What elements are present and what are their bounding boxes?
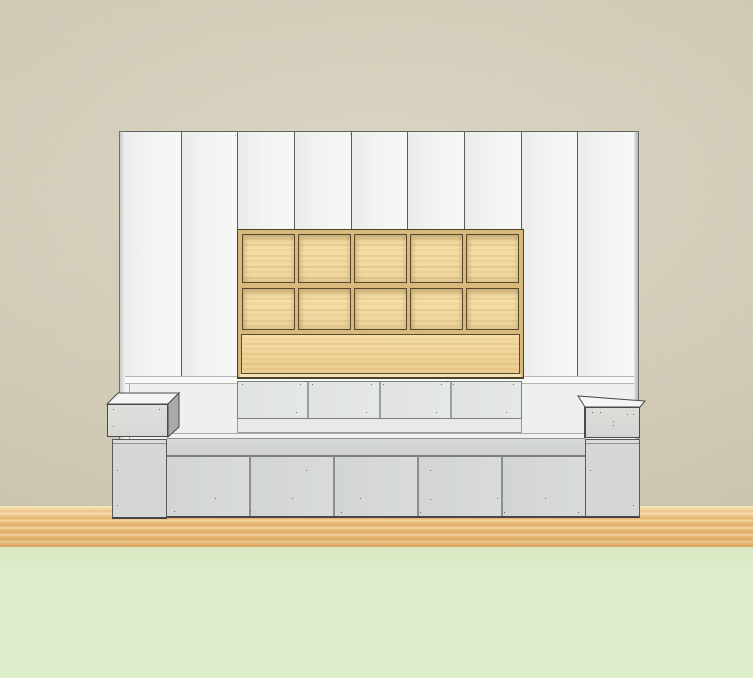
base-door: [335, 456, 417, 516]
drawer-front: [238, 382, 307, 418]
drawer-front: [381, 382, 450, 418]
cabinet-panel: [125, 132, 181, 383]
drawer-row: [237, 381, 522, 419]
cubby-cell: [466, 234, 519, 283]
base-door: [503, 456, 585, 516]
base-door: [167, 456, 249, 516]
cabinet-panel: [522, 132, 578, 383]
left-pedestal-cap: [113, 440, 166, 444]
cubby-cell: [242, 234, 295, 283]
drawer-front: [309, 382, 378, 418]
drawer-front: [452, 382, 521, 418]
left-box-front: [107, 404, 168, 437]
drawer-plinth: [237, 419, 522, 433]
cubby-cell: [298, 234, 351, 283]
cabinet-panel: [578, 132, 634, 383]
left-pedestal: [112, 439, 167, 519]
bench-front-rail: [167, 439, 585, 456]
shelf-bottom-edge: [240, 374, 521, 377]
cubby-cell: [410, 288, 463, 330]
cubby-cell: [242, 288, 295, 330]
right-pedestal-cap: [586, 440, 639, 444]
base-door-row: [167, 456, 585, 518]
green-floor: [0, 547, 753, 678]
shelf-bottom-panel: [241, 334, 520, 374]
cubby-row-top: [242, 234, 519, 283]
cubby-row-bottom: [242, 288, 519, 330]
base-door: [251, 456, 333, 516]
screw-dots: [0, 0, 1, 1]
right-box-front: [585, 407, 640, 438]
cubby-cell: [354, 288, 407, 330]
cabinet-panel: [182, 132, 238, 383]
cubby-cell: [354, 234, 407, 283]
cubby-cell: [410, 234, 463, 283]
cubby-cell: [298, 288, 351, 330]
right-pedestal: [585, 439, 640, 518]
wood-cubby-unit: [237, 229, 524, 379]
base-door: [419, 456, 501, 516]
cubby-cell: [466, 288, 519, 330]
furniture-render-canvas: [0, 0, 753, 678]
